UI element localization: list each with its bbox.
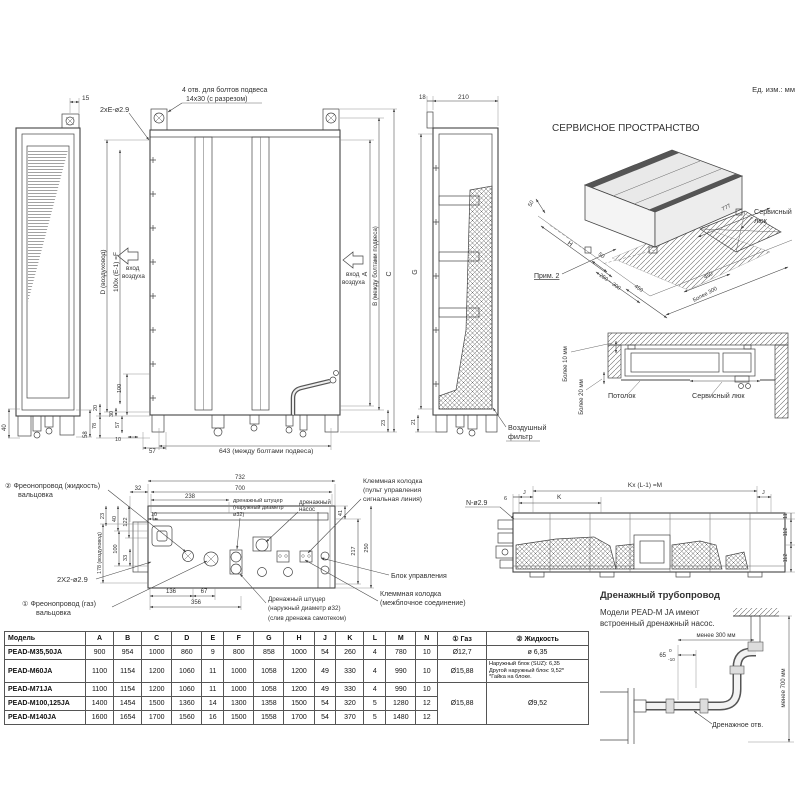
service-hatch-section-label: Сервисный люк — [692, 391, 745, 400]
callout-liquid-pipe-2: вальцовка — [18, 490, 53, 499]
dim-122: 122 — [123, 517, 129, 526]
table-cell: 16 — [202, 711, 224, 725]
dim-A: A — [362, 271, 369, 276]
service-hatch-label-1: Сервисный — [754, 207, 792, 216]
dim-23: 23 — [381, 420, 387, 426]
table-cell: Наружный блок (SUZ): 6,35 Другой наружны… — [487, 660, 589, 683]
table-cell: 1200 — [142, 683, 172, 697]
table-cell: 1500 — [224, 711, 254, 725]
table-cell: 1154 — [114, 660, 142, 683]
table-cell: 1000 — [224, 683, 254, 697]
table-header: Модель — [5, 632, 86, 646]
note-N-holes: N-ø2.9 — [466, 500, 488, 507]
table-cell: 780 — [386, 646, 416, 660]
dim-112b: 112 — [783, 554, 789, 563]
table-cell: 54 — [314, 711, 336, 725]
table-cell: 1454 — [114, 697, 142, 711]
table-cell: 1360 — [172, 697, 202, 711]
table-row: PEAD-M71JA110011541200106011100010581200… — [5, 683, 589, 697]
table-cell: 4 — [364, 683, 386, 697]
table-cell: 1300 — [224, 697, 254, 711]
dim-more-20mm: Более 20 мм — [579, 379, 585, 415]
dim-250: 250 — [364, 543, 370, 552]
dim-less-300: менее 300 мм — [696, 633, 735, 639]
technical-drawing-page: Ед. изм.: мм1540584 отв. для болтов подв… — [0, 0, 800, 800]
table-header: ① Газ — [438, 632, 487, 646]
table-cell: 260 — [336, 646, 364, 660]
note-suspension-holes-1: 4 отв. для болтов подвеса — [182, 86, 267, 94]
dim-G: G — [412, 269, 419, 274]
table-cell: 1700 — [142, 711, 172, 725]
dim-40b: 40 — [112, 516, 118, 522]
table-header: E — [202, 632, 224, 646]
dim-20: 20 — [93, 405, 99, 411]
table-row: PEAD-M60JA110011541200106011100010581200… — [5, 660, 589, 683]
dim-10b: 10 — [151, 512, 157, 518]
dim-J-right: J — [762, 490, 765, 496]
table-cell: 10 — [416, 646, 438, 660]
table-cell: PEAD-M35,50JA — [5, 646, 86, 660]
dim-B: B (между болтами подвеса) — [372, 226, 379, 306]
dim-K: K — [557, 494, 562, 501]
air-inlet-right-2: воздуха — [342, 279, 365, 286]
table-header: K — [336, 632, 364, 646]
table-cell: Ø15,88 — [438, 660, 487, 683]
dim-65: 65 — [659, 653, 666, 659]
dim-less-700: менее 700 мм — [781, 668, 787, 707]
table-cell: 860 — [172, 646, 202, 660]
table-cell: 54 — [314, 646, 336, 660]
dim-more-10mm: Более 10 мм — [563, 346, 569, 382]
table-cell: 11 — [202, 683, 224, 697]
table-cell: 954 — [114, 646, 142, 660]
table-cell: 54 — [314, 697, 336, 711]
dim-700: 700 — [235, 486, 246, 492]
table-header: L — [364, 632, 386, 646]
table-cell: 4 — [364, 646, 386, 660]
table-cell: PEAD-M71JA — [5, 683, 86, 697]
table-cell: 1500 — [142, 697, 172, 711]
table-cell: 49 — [314, 683, 336, 697]
dim-23b: 23 — [100, 513, 106, 519]
label-control-box: Блок управления — [391, 573, 447, 580]
callout-gas-pipe-1: ① Фреонопровод (газ) — [22, 599, 96, 608]
table-cell: 5 — [364, 711, 386, 725]
label-terminal-interunit-1: Клеммная колодка — [380, 591, 441, 598]
table-cell: 990 — [386, 683, 416, 697]
dim-D-duct: D (воздуховод) — [100, 249, 107, 294]
callout-liquid-pipe-1: ② Фреонопровод (жидкость) — [5, 481, 100, 490]
dim-6: 6 — [504, 496, 507, 502]
air-filter-label-2: фильтр — [508, 432, 533, 441]
table-cell: 1100 — [86, 660, 114, 683]
dim-643: 643 (между болтами подвеса) — [219, 447, 313, 455]
dim-15: 15 — [82, 95, 90, 102]
ceiling-label: Потолок — [608, 391, 636, 400]
dim-J-left: J — [523, 490, 526, 496]
table-cell: 1600 — [86, 711, 114, 725]
table-cell: 1060 — [172, 660, 202, 683]
table-header: N — [416, 632, 438, 646]
table-cell: 858 — [254, 646, 284, 660]
label-drain-nozzle-top-2: (наружный диаметр — [233, 504, 284, 511]
table-header: B — [114, 632, 142, 646]
table-cell: 4 — [364, 660, 386, 683]
table-cell: 1480 — [386, 711, 416, 725]
label-terminal-remote-2: (пульт управления — [363, 487, 422, 494]
table-cell: PEAD-M100,125JA — [5, 697, 86, 711]
table-header: ② Жидкость — [487, 632, 589, 646]
dim-210: 210 — [458, 94, 469, 101]
label-drain-pump-2: насос — [299, 507, 315, 513]
dim-112a: 112 — [783, 528, 789, 537]
table-cell: 1100 — [86, 683, 114, 697]
table-cell: 1000 — [224, 660, 254, 683]
left-end-view — [8, 98, 92, 438]
table-cell: 1058 — [254, 660, 284, 683]
label-terminal-remote-1: Клеммная колодка — [363, 478, 423, 485]
table-cell: 1200 — [284, 683, 314, 697]
table-cell: Ø12,7 — [438, 646, 487, 660]
table-cell: 14 — [202, 697, 224, 711]
service-space-title: СЕРВИСНОЕ ПРОСТРАНСТВО — [552, 123, 700, 134]
table-cell: 320 — [336, 697, 364, 711]
iso-dim-450-left: 450 — [633, 284, 644, 294]
table-cell: Ø9,52 — [487, 683, 589, 725]
label-drain-pump-1: дренажный — [299, 499, 331, 506]
dim-732: 732 — [235, 475, 246, 481]
dim-100b: 100 — [113, 544, 119, 553]
top-view — [465, 486, 795, 577]
table-cell: 370 — [336, 711, 364, 725]
table-cell: 1000 — [142, 646, 172, 660]
table-header: D — [172, 632, 202, 646]
table-cell: 9 — [202, 646, 224, 660]
iso-dim-more-300: Более 300 — [692, 286, 718, 304]
dim-33: 33 — [123, 555, 129, 561]
iso-dim-50-left: 50 — [527, 200, 535, 208]
dim-32: 32 — [135, 486, 142, 492]
label-drain-hole: Дренажное отв. — [712, 722, 763, 729]
table-header: H — [284, 632, 314, 646]
label-terminal-remote-3: сигнальная линия) — [363, 496, 422, 503]
dim-217: 217 — [351, 546, 357, 555]
drain-piping-body-2: встроенный дренажный насос. — [600, 619, 715, 628]
table-cell: 330 — [336, 683, 364, 697]
dim-57v: 57 — [115, 422, 121, 428]
table-cell: 1280 — [386, 697, 416, 711]
dim-57h: 57 — [149, 449, 156, 455]
table-header-row: МодельABCDEFGHJKLMN① Газ② Жидкость — [5, 632, 589, 646]
dim-67: 67 — [201, 589, 208, 595]
iso-note-2: Прим. 2 — [534, 273, 560, 280]
side-view — [415, 96, 540, 441]
air-inlet-left-1: вход — [126, 265, 140, 272]
callout-gas-pipe-2: вальцовка — [36, 608, 71, 617]
table-cell: 12 — [416, 697, 438, 711]
table-cell: PEAD-M60JA — [5, 660, 86, 683]
label-drain-nozzle-bottom-3: (слив дренажа самотеком) — [268, 615, 346, 622]
dim-C: C — [386, 271, 393, 276]
ceiling-section — [571, 333, 788, 418]
note-suspension-holes-2: 14x30 (с разрезом) — [186, 96, 248, 103]
table-row: PEAD-M35,50JA900954100086098008581000542… — [5, 646, 589, 660]
label-drain-nozzle-top-1: дренажный штуцер — [233, 497, 283, 504]
table-cell: Ø15,88 — [438, 683, 487, 725]
note-2xE: 2xE-ø2.9 — [100, 105, 129, 114]
table-cell: 1700 — [284, 711, 314, 725]
table-cell: 49 — [314, 660, 336, 683]
air-filter-label-1: Воздушный — [508, 423, 547, 432]
dim-KxM: Kx (L-1) =M — [628, 482, 662, 489]
table-cell: 900 — [86, 646, 114, 660]
table-cell: 1058 — [254, 683, 284, 697]
air-inlet-left-2: воздуха — [122, 273, 145, 280]
table-cell: 800 — [224, 646, 254, 660]
table-cell: 1558 — [254, 711, 284, 725]
label-terminal-interunit-2: (межблочное соединение) — [380, 599, 466, 607]
table-header: J — [314, 632, 336, 646]
dim-41: 41 — [338, 510, 344, 516]
table-cell: 1358 — [254, 697, 284, 711]
service-space-iso — [536, 150, 792, 318]
table-header: F — [224, 632, 254, 646]
table-cell: 1560 — [172, 711, 202, 725]
dim-30: 30 — [109, 411, 115, 417]
dim-78: 78 — [92, 423, 98, 429]
table-cell: 1060 — [172, 683, 202, 697]
table-header: G — [254, 632, 284, 646]
table-cell: 1154 — [114, 683, 142, 697]
dim-11: 11 — [783, 513, 789, 519]
table-header: M — [386, 632, 416, 646]
units-label: Ед. изм.: мм — [752, 85, 795, 94]
callout-2x2: 2X2-ø2.9 — [57, 575, 88, 584]
table-cell: 10 — [416, 660, 438, 683]
dim-65-tol-lower: -10 — [668, 657, 675, 663]
dim-10: 10 — [115, 437, 121, 443]
label-drain-nozzle-top-3: ø32) — [233, 512, 244, 518]
dim-356: 356 — [191, 600, 202, 606]
dim-58: 58 — [83, 431, 89, 438]
dim-18: 18 — [419, 95, 426, 101]
dim-21: 21 — [411, 419, 417, 425]
drain-piping-detail — [600, 608, 794, 744]
table-cell: PEAD-M140JA — [5, 711, 86, 725]
dim-100: 100 — [117, 384, 123, 393]
table-cell: 12 — [416, 711, 438, 725]
table-cell: 1500 — [284, 697, 314, 711]
dim-178: 178 (воздуховод) — [97, 532, 103, 574]
table-header: A — [86, 632, 114, 646]
table-cell: 11 — [202, 660, 224, 683]
table-cell: ø 6,35 — [487, 646, 589, 660]
table-cell: 1400 — [86, 697, 114, 711]
dim-F: 100x (E-1) =F — [113, 252, 120, 292]
service-hatch-label-2: люк — [754, 216, 768, 225]
label-drain-nozzle-bottom-2: (наружный диаметр ø32) — [268, 604, 341, 612]
table-cell: 1200 — [284, 660, 314, 683]
table-cell: 10 — [416, 683, 438, 697]
dim-136: 136 — [166, 589, 177, 595]
table-cell: 330 — [336, 660, 364, 683]
dimensions-table: МодельABCDEFGHJKLMN① Газ② ЖидкостьPEAD-M… — [4, 631, 589, 725]
label-drain-nozzle-bottom-1: Дренажный штуцер — [268, 595, 326, 603]
table-cell: 990 — [386, 660, 416, 683]
dim-238: 238 — [185, 494, 196, 500]
table-cell: 5 — [364, 697, 386, 711]
dim-65-tol-upper: 0 — [669, 648, 672, 654]
iso-dim-H: H — [566, 240, 574, 249]
table-cell: 1654 — [114, 711, 142, 725]
air-inlet-right-1: вход — [346, 271, 360, 278]
table-cell: 1200 — [142, 660, 172, 683]
drain-piping-body-1: Модели PEAD-M JA имеют — [600, 608, 700, 617]
table-cell: 1000 — [284, 646, 314, 660]
dim-40: 40 — [2, 424, 8, 431]
table-header: C — [142, 632, 172, 646]
drain-piping-title: Дренажный трубопровод — [600, 590, 720, 601]
